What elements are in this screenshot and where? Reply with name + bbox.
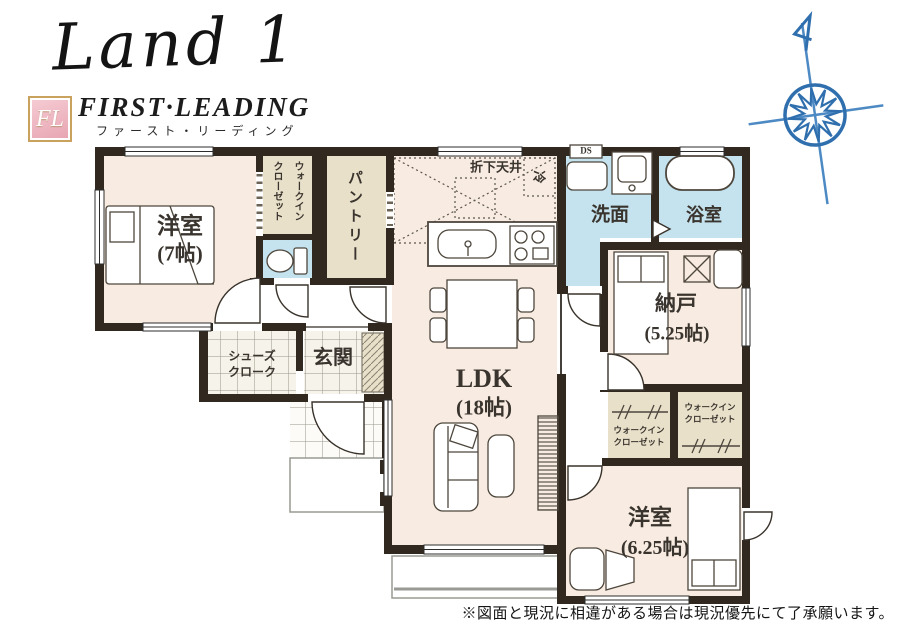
bathtub: [666, 156, 734, 190]
tv-board: [538, 416, 558, 510]
pantry-floor: [327, 156, 386, 278]
wic-left-floor: [608, 392, 670, 458]
duct-space-box: [570, 145, 602, 158]
toilet-fixture: [267, 248, 307, 274]
door-western2-exterior: [744, 512, 772, 540]
wic-top-floor: [263, 156, 312, 234]
kitchen-counter: [428, 222, 557, 266]
sofa: [434, 423, 478, 511]
disclaimer-note: ※図面と現況に相違がある場合は現況優先にて了承願います。: [461, 602, 894, 623]
terrace: [392, 556, 562, 598]
floorplan-page: Land 1 FL FIRST·LEADING ファースト・リーディング: [0, 0, 900, 635]
wic-right-floor: [678, 392, 742, 458]
washing-machine: [567, 162, 607, 190]
coffee-table: [488, 435, 514, 497]
bed-western1: [106, 206, 214, 284]
floorplan-drawing: [0, 0, 900, 635]
